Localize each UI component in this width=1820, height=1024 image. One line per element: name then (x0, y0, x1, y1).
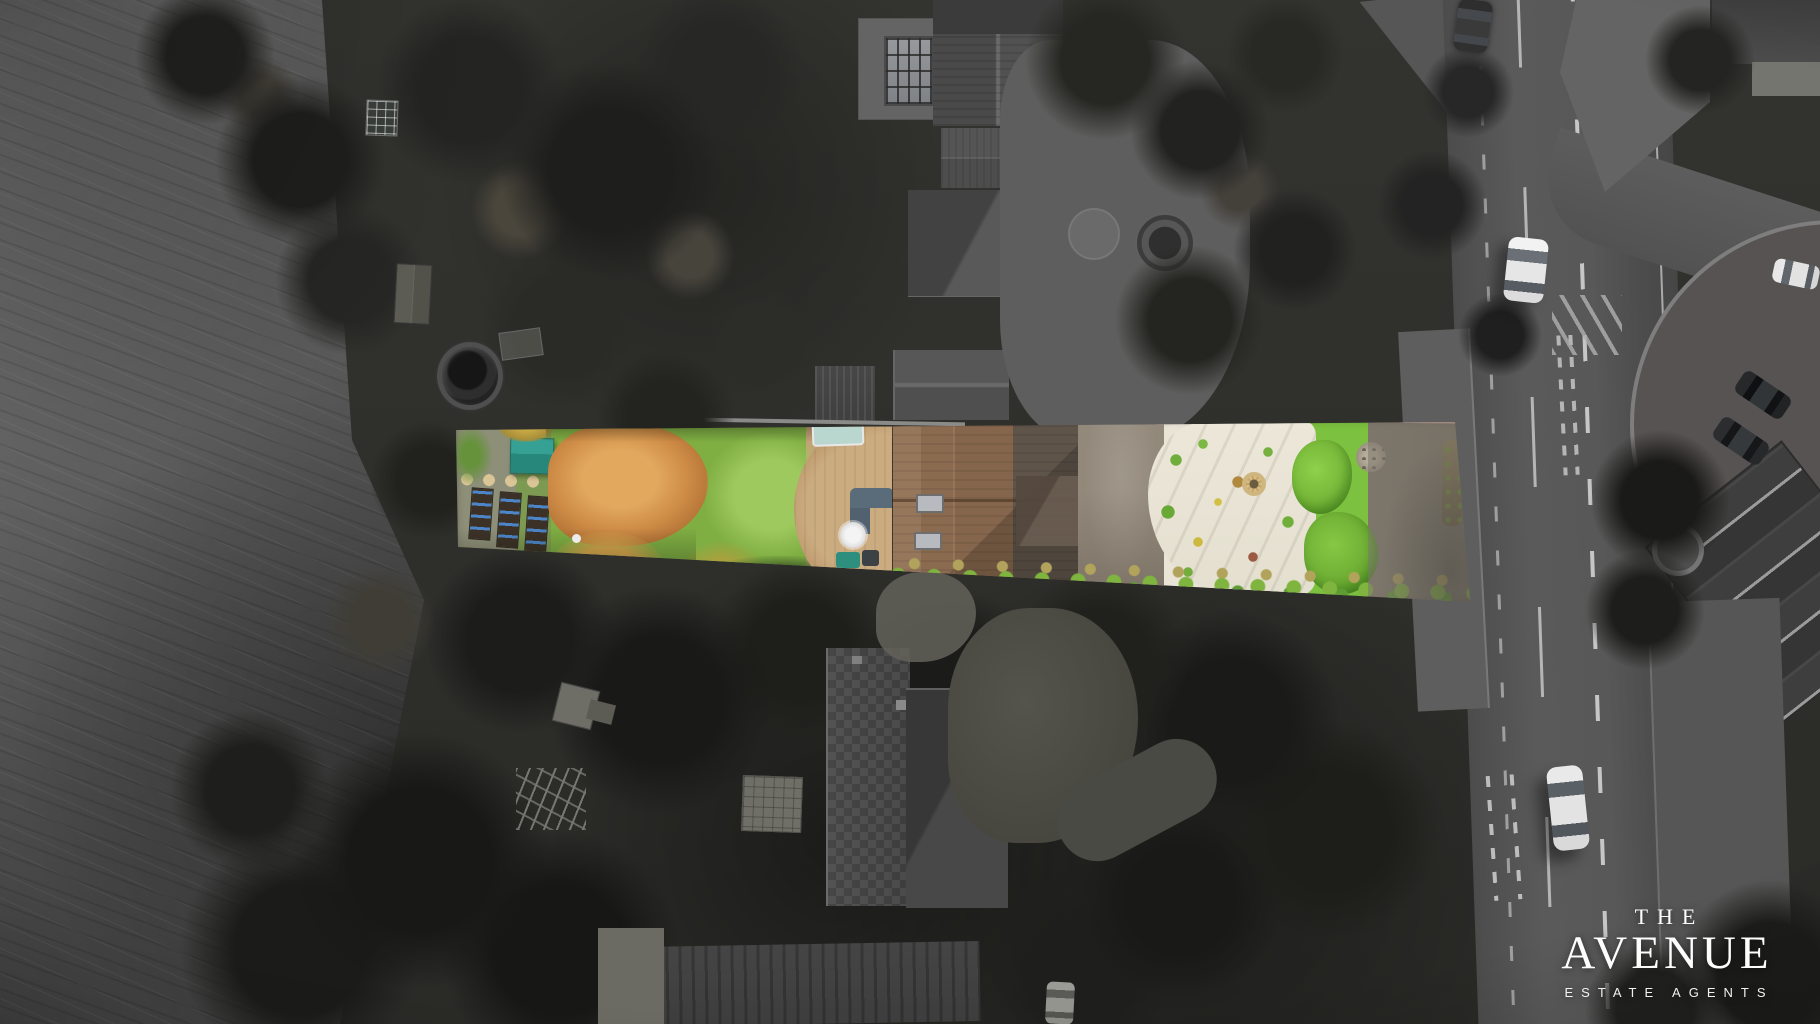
car-dark-north (1453, 0, 1494, 54)
chimney-2 (852, 656, 862, 664)
cold-frame (498, 327, 543, 361)
watermark-avenue: AVENUE (1540, 930, 1794, 978)
watermark-estate-agents: ESTATE AGENTS (1540, 985, 1798, 1000)
agency-watermark: THE AVENUE ESTATE AGENTS (1540, 904, 1790, 1000)
east-drive-shade (1368, 416, 1472, 608)
car-gray-rear (1045, 981, 1075, 1024)
aerial-photo: THE AVENUE ESTATE AGENTS (0, 0, 1820, 1024)
topiary-shrub (1292, 440, 1352, 514)
water-tank (437, 342, 503, 410)
bottom-yard (598, 928, 664, 1024)
sun-ornament (1242, 472, 1266, 496)
rear-house-roof (826, 648, 910, 906)
waste-bin (862, 550, 879, 566)
glass-roof-hut (365, 99, 398, 136)
garden-shed-gray (393, 263, 432, 325)
white-round-table (840, 522, 866, 548)
greenhouse (741, 775, 803, 833)
bird-table (572, 534, 581, 543)
bottom-building (639, 941, 980, 1024)
car-white-upper (1503, 236, 1549, 304)
chimney (896, 700, 906, 710)
climbing-frame (516, 768, 586, 830)
teal-storage-box (836, 552, 860, 568)
skylight (916, 494, 944, 513)
roof-gable-slate (1016, 476, 1082, 546)
